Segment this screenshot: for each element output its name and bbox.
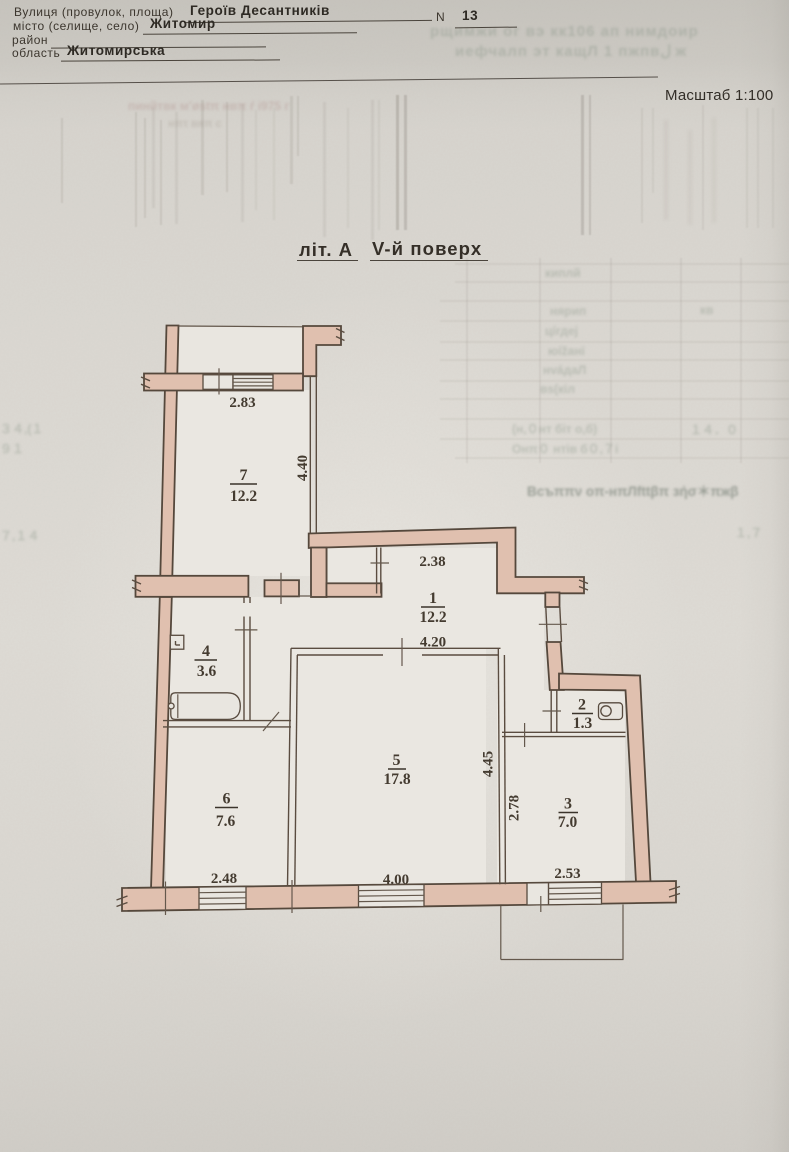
svg-text:12.2: 12.2 [419,609,446,626]
svg-text:4.45: 4.45 [481,751,497,777]
svg-text:12.2: 12.2 [230,488,257,505]
svg-text:6: 6 [223,791,231,808]
svg-text:4.00: 4.00 [383,872,409,888]
svg-text:7.6: 7.6 [216,813,236,830]
svg-text:17.8: 17.8 [383,771,410,788]
svg-text:2.48: 2.48 [211,871,237,887]
svg-text:2.38: 2.38 [419,554,445,570]
svg-text:2: 2 [578,697,586,714]
svg-text:5: 5 [393,752,401,769]
svg-text:4.40: 4.40 [295,455,311,481]
svg-text:1.3: 1.3 [573,715,593,732]
svg-text:1: 1 [429,590,437,607]
svg-text:3: 3 [564,796,572,813]
svg-text:7.0: 7.0 [558,814,578,831]
svg-text:4: 4 [202,643,210,660]
svg-text:2.53: 2.53 [554,866,580,882]
svg-text:2.83: 2.83 [229,395,255,411]
svg-text:2.78: 2.78 [507,795,523,821]
svg-text:3.6: 3.6 [197,663,217,680]
svg-text:4.20: 4.20 [420,635,446,651]
svg-text:7: 7 [240,467,248,484]
